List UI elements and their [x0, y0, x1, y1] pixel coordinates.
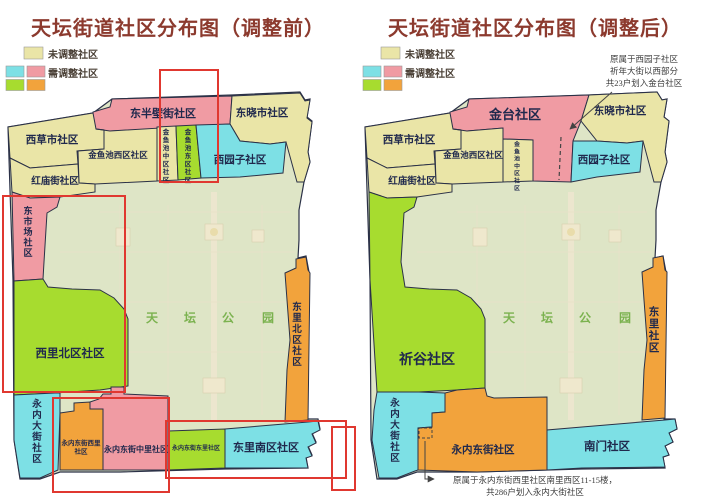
legend-label: 需调整社区 — [48, 67, 98, 80]
map-before-panel: 天坛街道社区分布图（调整前） 东半壁街社区东晓市社区西草市社区金鱼池西区社区红庙… — [0, 0, 356, 500]
highlight-box — [332, 427, 355, 490]
region-label-hongmiao: 红庙街社区 — [31, 175, 79, 187]
region-label-xilibei: 西里北区社区 — [36, 346, 105, 360]
region-label-jinyuchi_dong: 金鱼池东区社区 — [184, 127, 192, 184]
region-label-dongxiaoshi: 东晓市社区 — [594, 104, 647, 117]
legend-swatch-orange — [384, 80, 402, 91]
legend-swatch-cyan — [363, 66, 381, 77]
legend-swatch-cyan — [6, 66, 24, 77]
region-label-jinyuchi_xi: 金鱼池西区社区 — [442, 150, 503, 160]
region-label-donglibei: 东里北区社区 — [291, 301, 302, 368]
region-yongnei_xili — [60, 402, 103, 470]
park-label-char: 公 — [579, 311, 591, 325]
region-label-xicaoshi: 西草市社区 — [26, 133, 79, 146]
legend-swatch-green — [6, 80, 24, 91]
legend-swatch-yellow — [24, 47, 43, 59]
region-label-yongnei_dajie: 永内大街社区 — [31, 398, 42, 465]
map-before-canvas: 东半壁街社区东晓市社区西草市社区金鱼池西区社区红庙街社区金鱼池中区社区金鱼池东区… — [0, 0, 356, 500]
region-label-donghalfbi: 东半壁街社区 — [130, 106, 196, 120]
park-label-char: 坛 — [184, 310, 196, 325]
legend-swatch-green — [363, 80, 381, 91]
legend-swatch-yellow — [381, 47, 400, 59]
legend-label: 需调整社区 — [405, 67, 455, 80]
park-label-char: 园 — [619, 311, 631, 325]
region-label-xicaoshi: 西草市社区 — [383, 133, 436, 146]
screenshot-root: 天坛街道社区分布图（调整前） 东半壁街社区东晓市社区西草市社区金鱼池西区社区红庙… — [0, 0, 713, 500]
annotation-top: 原属于西园子社区祈年大街以西部分共23户划入金台社区 — [606, 54, 683, 88]
annotation-bottom: 原属于永内东街西里社区南里西区11-15楼，共286户划入永内大街社区 — [453, 475, 617, 497]
park-label-char: 园 — [262, 311, 274, 325]
region-label-dongli: 东里社区 — [648, 305, 660, 354]
map-after-title: 天坛街道社区分布图（调整后） — [357, 12, 713, 41]
region-label-xiyuanzi: 西园子社区 — [578, 153, 631, 166]
map-before-title: 天坛街道社区分布图（调整前） — [0, 12, 356, 41]
region-label-jinyuchi_xi: 金鱼池西区社区 — [87, 150, 148, 160]
legend-label: 未调整社区 — [404, 48, 455, 61]
region-label-yongnei_zhongli: 永内东街中里社区 — [103, 444, 168, 454]
region-label-yongnei_dongjie: 永内东街社区 — [451, 443, 515, 456]
region-label-qigu: 祈谷社区 — [399, 351, 455, 368]
region-label-nanmen: 南门社区 — [584, 439, 630, 453]
region-label-donglinan: 东里南区社区 — [233, 440, 299, 454]
legend-swatch-pink — [27, 66, 45, 77]
region-label-yongnei_dongli: 永内东街东里社区 — [171, 444, 220, 452]
region-label-hongmiao: 红庙街社区 — [388, 175, 436, 187]
map-after-panel: 天坛街道社区分布图（调整后） 金台社区东晓市社区西园子社区西草市社区金鱼池西区社… — [357, 0, 713, 500]
legend-swatch-pink — [384, 66, 402, 77]
region-label-jintai: 金台社区 — [488, 107, 541, 122]
map-after-canvas: 金台社区东晓市社区西园子社区西草市社区金鱼池西区社区红庙街社区金鱼池中区社区祈谷… — [357, 0, 713, 500]
region-label-dongxiaoshi: 东晓市社区 — [236, 106, 289, 119]
region-xilibei — [14, 279, 128, 395]
park-label-char: 天 — [503, 311, 516, 325]
legend: 未调整社区需调整社区 — [6, 47, 98, 91]
park-label-char: 公 — [222, 311, 234, 325]
legend-label: 未调整社区 — [47, 48, 98, 61]
legend: 未调整社区需调整社区 — [363, 47, 455, 91]
park-label-char: 天 — [146, 311, 159, 325]
region-label-dongshichang: 东市场社区 — [22, 205, 32, 258]
park-label-char: 坛 — [541, 310, 553, 325]
region-label-yongnei_dajie: 永内大街社区 — [389, 397, 400, 464]
legend-swatch-orange — [27, 80, 45, 91]
region-label-xiyuanzi: 西园子社区 — [214, 153, 267, 166]
region-label-jinyuchi_zhong: 金鱼池中区社区 — [513, 140, 520, 192]
region-label-jinyuchi_zhong: 金鱼池中区社区 — [162, 127, 170, 184]
